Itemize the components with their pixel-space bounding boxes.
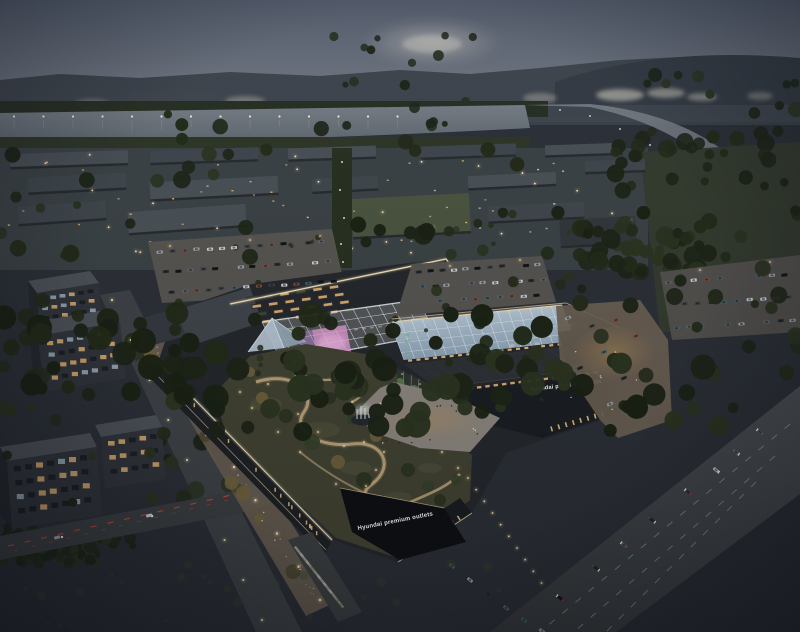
scene-canvas: Hyundai premium outlets [0, 0, 800, 632]
car-headlight [61, 536, 63, 538]
aerial-rendering: Hyundai premium outlets [0, 0, 800, 632]
